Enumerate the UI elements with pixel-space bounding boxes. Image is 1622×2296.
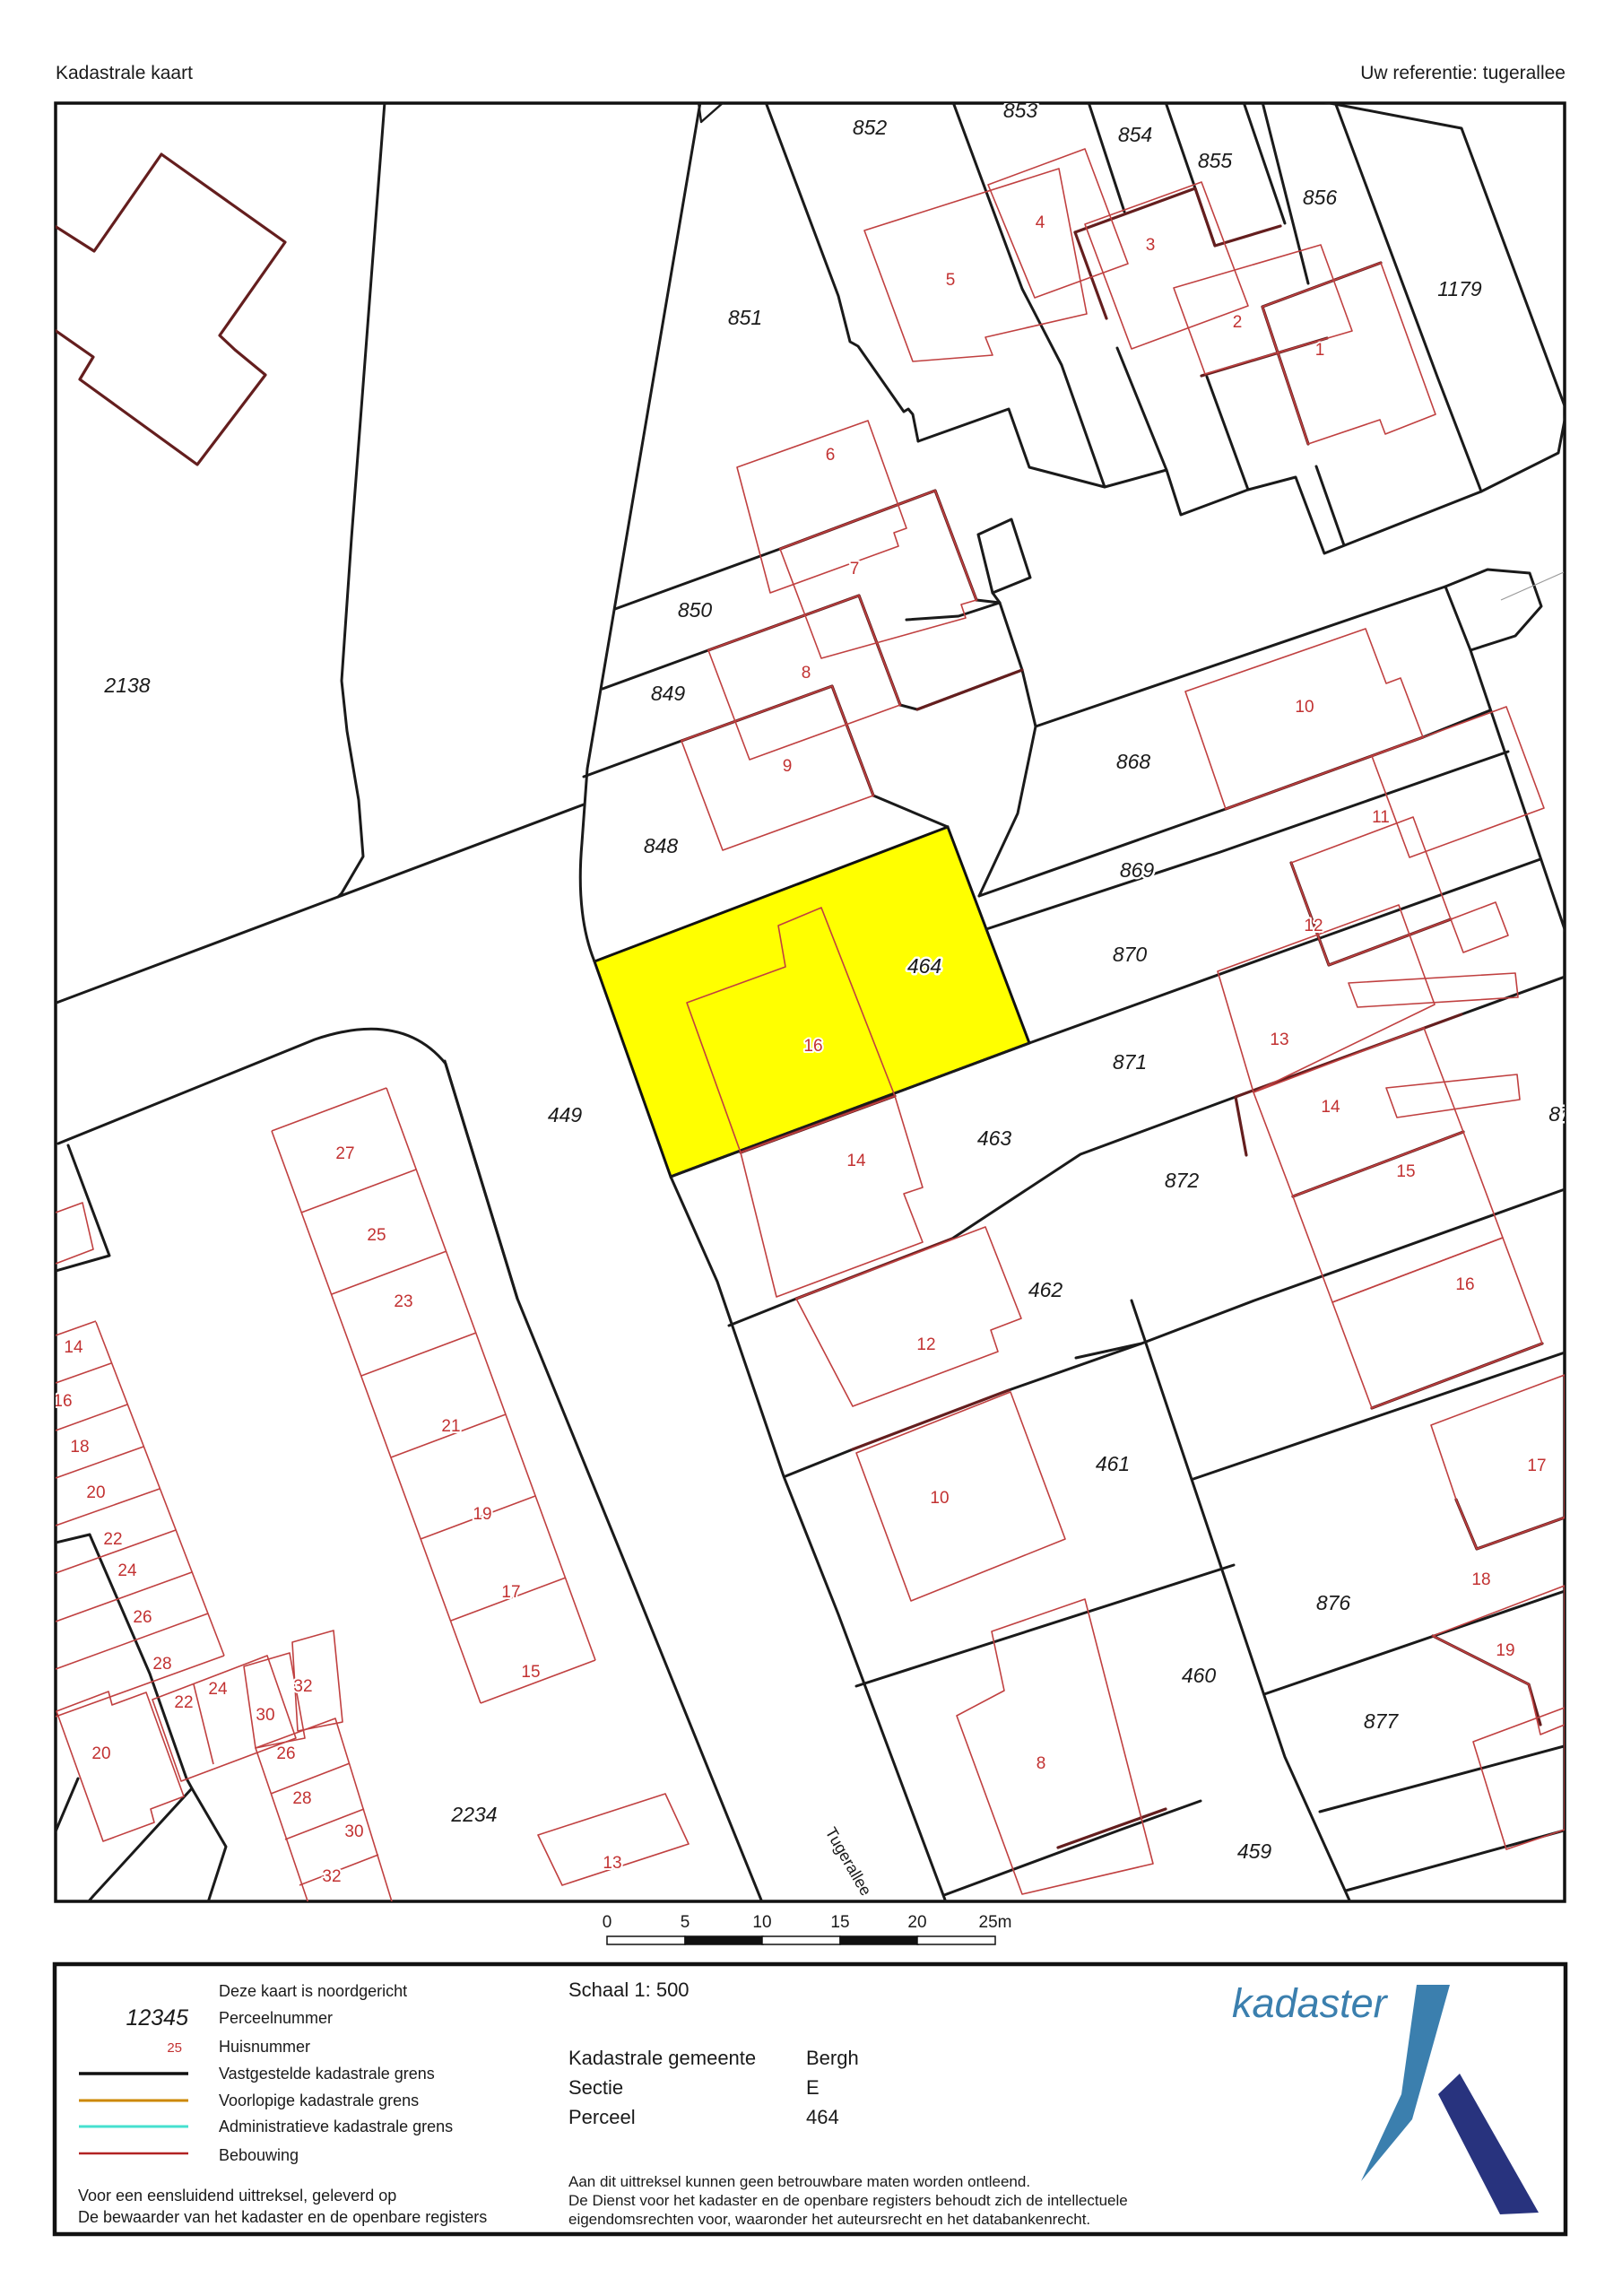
svg-text:6: 6	[826, 446, 836, 465]
svg-text:464: 464	[907, 954, 941, 978]
svg-text:852: 852	[853, 116, 888, 139]
svg-text:Deze kaart is noordgericht: Deze kaart is noordgericht	[219, 1982, 407, 2000]
svg-text:5: 5	[681, 1913, 690, 1932]
svg-text:De Dienst voor het kadaster en: De Dienst voor het kadaster en de openba…	[568, 2192, 1128, 2209]
svg-text:Voorlopige kadastrale grens: Voorlopige kadastrale grens	[219, 2092, 419, 2109]
svg-text:14: 14	[1321, 1098, 1340, 1117]
svg-text:14: 14	[846, 1152, 866, 1170]
svg-text:13: 13	[1270, 1031, 1288, 1049]
svg-text:Schaal 1: 500: Schaal 1: 500	[568, 1979, 690, 2001]
svg-text:16: 16	[53, 1392, 72, 1411]
svg-text:28: 28	[152, 1655, 171, 1674]
svg-text:868: 868	[1116, 750, 1151, 773]
svg-text:Perceelnummer: Perceelnummer	[219, 2009, 333, 2027]
svg-text:871: 871	[1113, 1050, 1147, 1074]
svg-text:449: 449	[548, 1103, 583, 1126]
svg-text:855: 855	[1198, 149, 1233, 172]
svg-text:3: 3	[1146, 236, 1156, 255]
svg-text:23: 23	[394, 1292, 412, 1311]
svg-text:25: 25	[367, 1226, 386, 1245]
svg-text:9: 9	[783, 757, 793, 776]
svg-text:464: 464	[806, 2106, 839, 2128]
svg-text:26: 26	[133, 1608, 152, 1627]
svg-text:12: 12	[1304, 917, 1323, 935]
svg-text:24: 24	[208, 1680, 228, 1699]
svg-text:870: 870	[1113, 943, 1148, 966]
svg-text:27: 27	[335, 1144, 354, 1163]
svg-text:16: 16	[803, 1037, 822, 1056]
svg-text:Kadastrale kaart: Kadastrale kaart	[56, 63, 193, 83]
svg-text:17: 17	[1527, 1457, 1546, 1475]
svg-text:2234: 2234	[450, 1803, 497, 1826]
svg-text:16: 16	[1455, 1275, 1474, 1294]
svg-text:872: 872	[1165, 1169, 1200, 1192]
svg-text:17: 17	[501, 1583, 520, 1602]
svg-text:8: 8	[1037, 1754, 1046, 1773]
svg-text:kadaster: kadaster	[1232, 1980, 1389, 2026]
svg-text:Sectie: Sectie	[568, 2076, 623, 2099]
svg-text:8: 8	[802, 664, 811, 683]
svg-text:1179: 1179	[1437, 277, 1482, 300]
svg-text:0: 0	[603, 1913, 612, 1932]
svg-text:20: 20	[907, 1913, 926, 1932]
svg-text:10: 10	[752, 1913, 771, 1932]
svg-text:11: 11	[1372, 808, 1390, 827]
svg-text:Perceel: Perceel	[568, 2106, 636, 2128]
svg-text:22: 22	[174, 1693, 193, 1712]
svg-text:Uw referentie: tugerallee: Uw referentie: tugerallee	[1360, 63, 1566, 83]
svg-text:Voor een eensluidend uittrekse: Voor een eensluidend uittreksel, gelever…	[78, 2187, 396, 2205]
svg-text:30: 30	[256, 1706, 274, 1725]
svg-text:Bebouwing: Bebouwing	[219, 2146, 299, 2164]
svg-text:E: E	[806, 2076, 820, 2099]
svg-text:32: 32	[293, 1677, 312, 1696]
svg-text:20: 20	[91, 1744, 110, 1763]
svg-text:5: 5	[946, 271, 956, 290]
svg-text:850: 850	[678, 598, 713, 622]
svg-text:Bergh: Bergh	[806, 2047, 859, 2069]
svg-text:25: 25	[167, 2040, 182, 2056]
svg-text:18: 18	[1471, 1570, 1490, 1589]
svg-text:848: 848	[644, 834, 679, 857]
svg-text:854: 854	[1118, 123, 1152, 146]
svg-text:Kadastrale gemeente: Kadastrale gemeente	[568, 2047, 756, 2069]
svg-text:461: 461	[1096, 1452, 1130, 1475]
svg-text:10: 10	[1295, 698, 1314, 717]
svg-text:2: 2	[1233, 313, 1243, 332]
svg-text:2138: 2138	[103, 674, 150, 697]
svg-text:459: 459	[1237, 1839, 1272, 1863]
svg-text:Huisnummer: Huisnummer	[219, 2038, 310, 2056]
svg-text:19: 19	[473, 1505, 491, 1524]
svg-text:4: 4	[1036, 213, 1045, 232]
svg-text:24: 24	[117, 1561, 137, 1580]
svg-text:15: 15	[1396, 1162, 1415, 1181]
svg-text:462: 462	[1028, 1278, 1063, 1301]
svg-text:15: 15	[830, 1913, 849, 1932]
svg-text:856: 856	[1303, 186, 1338, 209]
svg-text:eigendomsrechten voor, waarond: eigendomsrechten voor, waaronder het aut…	[568, 2211, 1090, 2228]
svg-text:Administratieve kadastrale gre: Administratieve kadastrale grens	[219, 2118, 453, 2135]
svg-text:20: 20	[86, 1483, 105, 1502]
svg-text:849: 849	[651, 682, 686, 705]
svg-text:1: 1	[1315, 341, 1325, 360]
svg-text:12: 12	[916, 1335, 935, 1354]
svg-text:26: 26	[276, 1744, 295, 1763]
svg-text:877: 877	[1364, 1709, 1400, 1733]
svg-text:12345: 12345	[126, 2005, 188, 2031]
svg-text:30: 30	[344, 1822, 363, 1841]
svg-text:876: 876	[1316, 1591, 1351, 1614]
svg-text:460: 460	[1182, 1664, 1217, 1687]
svg-text:14: 14	[64, 1338, 83, 1357]
svg-text:De bewaarder van het kadaster: De bewaarder van het kadaster en de open…	[78, 2208, 487, 2226]
svg-text:22: 22	[103, 1530, 122, 1549]
svg-text:869: 869	[1120, 858, 1155, 882]
svg-text:Vastgestelde kadastrale grens: Vastgestelde kadastrale grens	[219, 2065, 435, 2083]
svg-text:851: 851	[728, 306, 762, 329]
svg-text:21: 21	[441, 1417, 460, 1436]
svg-text:15: 15	[521, 1663, 540, 1682]
svg-text:13: 13	[603, 1854, 621, 1873]
svg-text:28: 28	[292, 1789, 311, 1808]
svg-text:7: 7	[850, 560, 860, 578]
svg-text:19: 19	[1496, 1641, 1514, 1660]
svg-text:10: 10	[930, 1489, 949, 1508]
svg-text:25m: 25m	[979, 1913, 1012, 1932]
svg-text:18: 18	[70, 1438, 89, 1457]
svg-text:Aan dit uittreksel kunnen geen: Aan dit uittreksel kunnen geen betrouwba…	[568, 2173, 1030, 2190]
svg-text:463: 463	[977, 1126, 1012, 1150]
svg-text:32: 32	[322, 1867, 341, 1886]
